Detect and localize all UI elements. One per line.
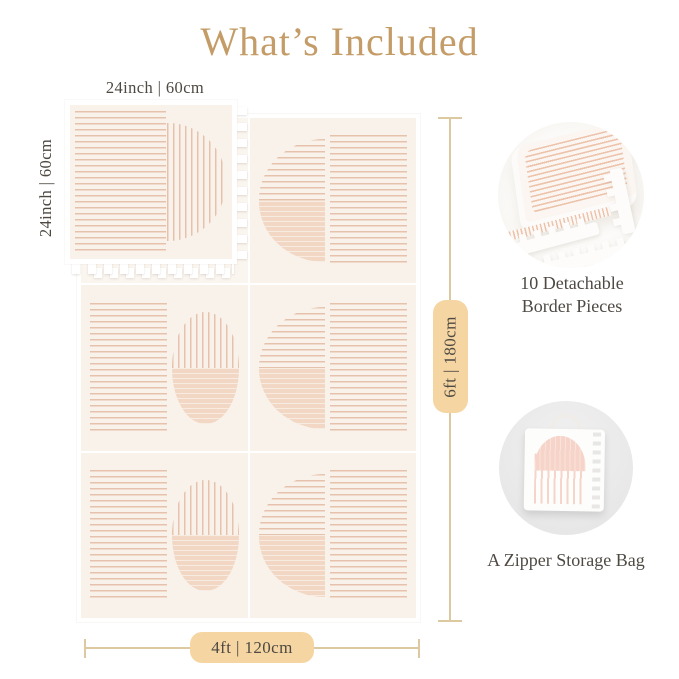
stripes-block <box>90 303 167 434</box>
circle-motif <box>259 307 326 430</box>
storage-bag-label: A Zipper Storage Bag <box>466 549 666 572</box>
height-dimension-text: 6ft | 180cm <box>441 316 461 397</box>
width-dimension-text: 4ft | 120cm <box>211 638 292 658</box>
border-pieces-label-line2: Border Pieces <box>486 295 658 318</box>
stripes-block <box>330 303 407 434</box>
circle-motif <box>167 123 225 240</box>
height-dimension-badge: 6ft | 180cm <box>433 300 468 413</box>
zipper-bag-illustration <box>524 428 605 511</box>
mat-cell <box>250 118 417 283</box>
bag-puzzle-edge <box>592 433 601 509</box>
single-tile-illustration <box>65 100 237 264</box>
border-pieces-label-line1: 10 Detachable <box>486 272 658 295</box>
width-measure-cap-right <box>418 639 420 658</box>
mat-cell <box>81 453 248 618</box>
mat-cell <box>250 285 417 450</box>
storage-bag-photo-circle <box>499 401 633 535</box>
width-measure-cap-left <box>84 639 86 658</box>
page-title: What’s Included <box>0 18 679 65</box>
border-pieces-label: 10 Detachable Border Pieces <box>486 272 658 318</box>
product-infographic: What’s Included 24inch | 60cm 24inch | 6… <box>0 0 679 679</box>
circle-motif <box>172 312 239 423</box>
height-measure-cap-bottom <box>438 620 462 622</box>
storage-bag-label-text: A Zipper Storage Bag <box>466 549 666 572</box>
circle-motif <box>259 474 326 597</box>
circle-bowl <box>172 368 239 424</box>
border-pieces-photo-circle <box>498 122 644 268</box>
stripes-block <box>75 111 166 253</box>
tile-height-label: 24inch | 60cm <box>36 139 56 237</box>
stripes-block <box>330 470 407 601</box>
circle-bowl <box>172 535 239 591</box>
circle-motif <box>259 139 326 262</box>
stripes-block <box>330 135 407 266</box>
height-measure-cap-top <box>438 117 462 119</box>
tile-width-label: 24inch | 60cm <box>67 78 243 98</box>
circle-motif <box>172 480 239 591</box>
width-dimension-badge: 4ft | 120cm <box>190 632 314 663</box>
circle-arch <box>172 312 239 368</box>
circle-arch <box>172 480 239 536</box>
mat-cell <box>81 285 248 450</box>
stripes-block <box>90 470 167 601</box>
bag-arch-motif <box>534 436 586 471</box>
mat-cell <box>250 453 417 618</box>
